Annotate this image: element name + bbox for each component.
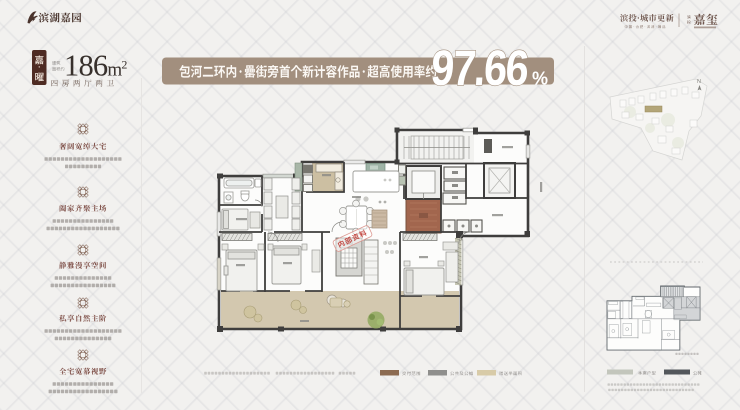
svg-text:N: N	[697, 79, 701, 85]
svg-text:186m2: 186m2	[64, 49, 127, 83]
svg-text:%: %	[532, 69, 548, 89]
svg-text:97.66: 97.66	[429, 40, 530, 96]
